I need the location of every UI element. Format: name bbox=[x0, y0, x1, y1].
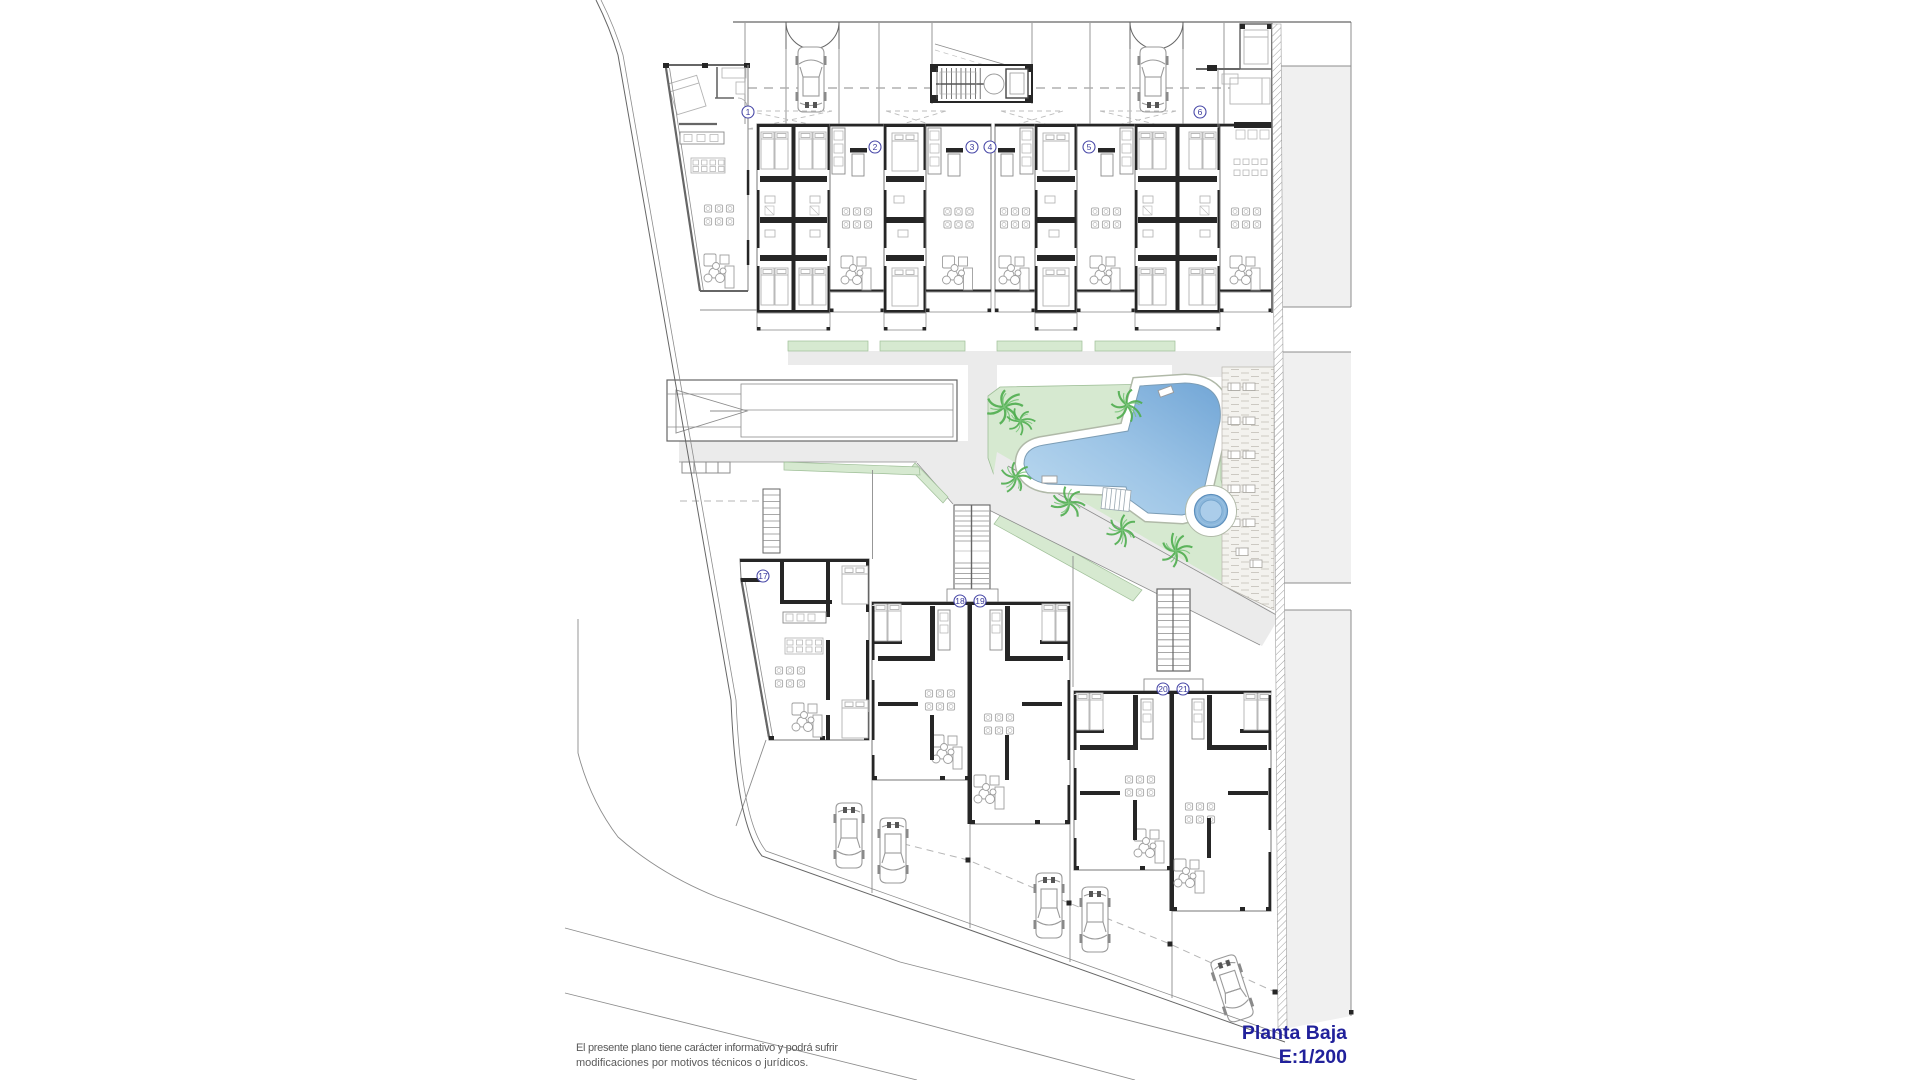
svg-text:modificaciones por motivos téc: modificaciones por motivos técnicos o ju… bbox=[576, 1057, 808, 1069]
svg-text:21: 21 bbox=[1178, 684, 1188, 694]
svg-text:20: 20 bbox=[1158, 684, 1168, 694]
svg-text:1: 1 bbox=[746, 107, 751, 117]
svg-text:E:1/200: E:1/200 bbox=[1279, 1046, 1347, 1068]
svg-text:El presente plano tiene caráct: El presente plano tiene carácter informa… bbox=[576, 1042, 838, 1054]
svg-text:Planta Baja: Planta Baja bbox=[1242, 1022, 1347, 1044]
svg-text:17: 17 bbox=[758, 571, 768, 581]
svg-text:4: 4 bbox=[988, 142, 993, 152]
svg-text:18: 18 bbox=[955, 596, 965, 606]
svg-text:6: 6 bbox=[1198, 107, 1203, 117]
svg-text:5: 5 bbox=[1087, 142, 1092, 152]
svg-text:2: 2 bbox=[873, 142, 878, 152]
svg-text:19: 19 bbox=[975, 596, 985, 606]
svg-text:3: 3 bbox=[970, 142, 975, 152]
